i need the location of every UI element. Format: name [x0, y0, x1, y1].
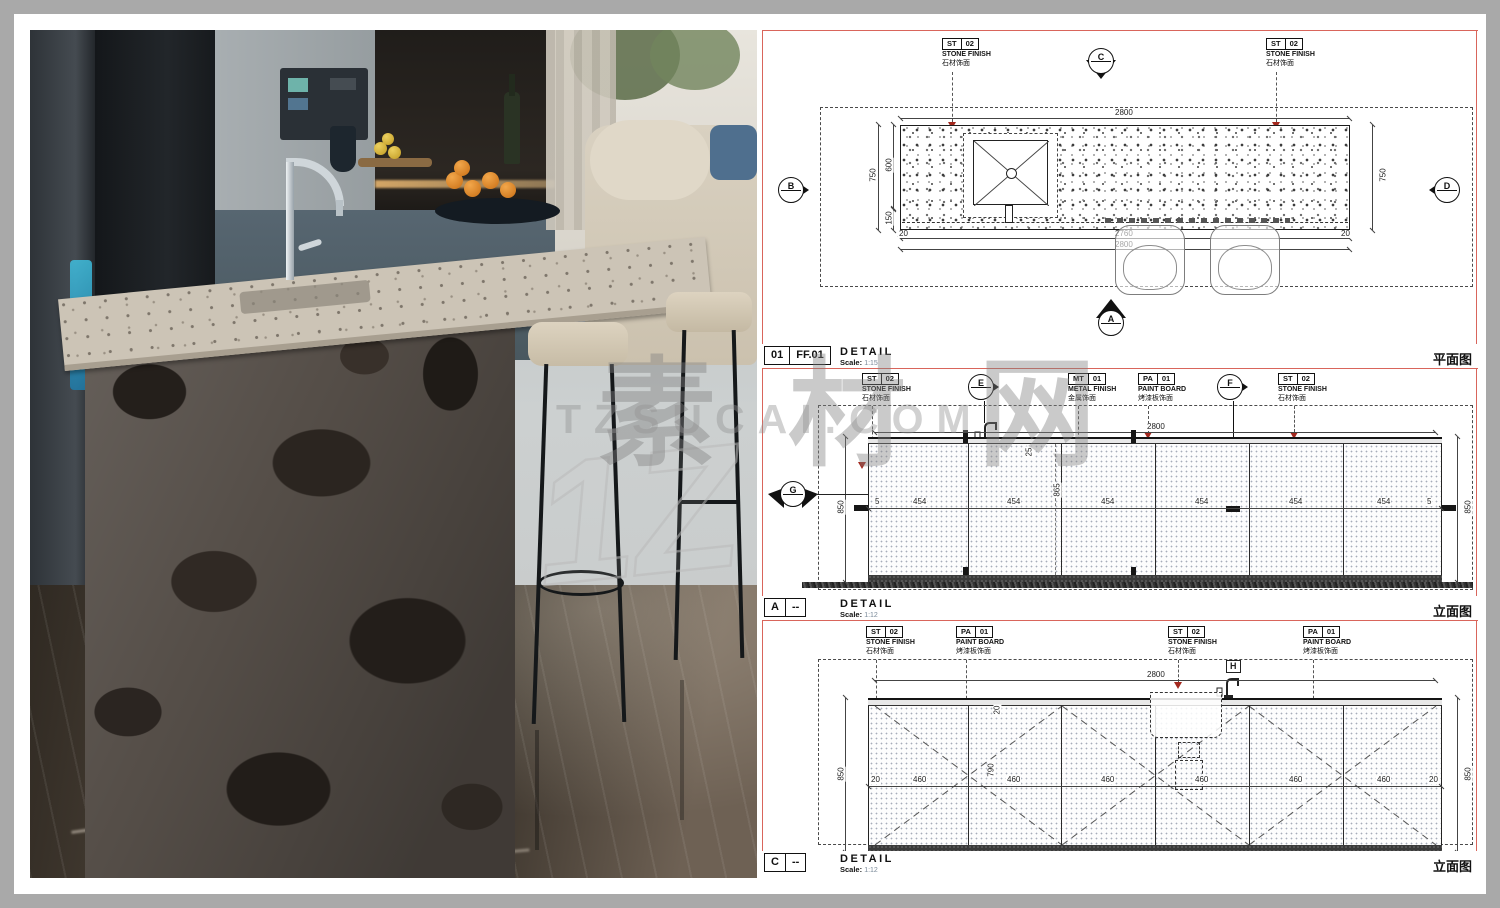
titlebar-plan: 01 FF.01 DETAIL Scale: 1:15 平面图 — [762, 344, 1478, 368]
hidden-drain — [1178, 742, 1200, 758]
view-type-label: 平面图 — [1433, 349, 1472, 368]
dim-label: 460 — [1100, 776, 1115, 784]
material-en: STONE FINISH — [942, 51, 1028, 59]
panel-divider — [1155, 444, 1156, 575]
design-board: ST02 STONE FINISH 石材饰面 ST02 STONE FINISH… — [0, 0, 1500, 908]
material-num: 02 — [1297, 374, 1314, 384]
dim-label: 5 — [874, 498, 880, 506]
photo-black-vase — [330, 126, 356, 172]
elevation-c-panel: ST02 STONE FINISH 石材饰面 PA01 PAINT BOARD … — [762, 620, 1478, 851]
photo-stool1-seat — [528, 322, 628, 366]
title-scale: Scale: 1:12 — [840, 865, 878, 874]
dim-label: 460 — [1194, 776, 1209, 784]
plan-view-panel: ST02 STONE FINISH 石材饰面 ST02 STONE FINISH… — [762, 30, 1478, 344]
material-cn: 石材饰面 — [866, 648, 952, 656]
plan-faucet-stub — [1005, 205, 1013, 223]
section-marker-g: G — [770, 480, 816, 508]
title-name: DETAIL — [840, 346, 894, 358]
photo-stool2-crossbar — [678, 500, 740, 504]
dim-line — [900, 118, 1350, 119]
panel-divider — [1061, 444, 1062, 575]
callout-stone-finish: ST02 STONE FINISH 石材饰面 — [866, 626, 952, 656]
title-number: 01 — [765, 347, 789, 364]
photo-orange-3 — [482, 172, 499, 189]
hidden-sink — [1150, 692, 1222, 738]
dim-line — [874, 680, 1436, 681]
dim-label: 460 — [912, 776, 927, 784]
dim-label: 454 — [1376, 498, 1391, 506]
material-code: ST — [943, 39, 961, 49]
dim-label: 850 — [838, 766, 846, 781]
panel-divider — [968, 444, 969, 575]
titlebar-elevation-c: C -- DETAIL Scale: 1:12 立面图 — [762, 851, 1478, 875]
stool-hatch-strip — [1105, 218, 1290, 223]
photo-orange-5 — [500, 182, 516, 198]
photo-sofa-cushion — [590, 120, 710, 200]
panel-divider — [1343, 706, 1344, 845]
material-code: ST — [1169, 627, 1187, 637]
callout-stone-finish: ST02 STONE FINISH 石材饰面 — [942, 38, 1028, 68]
cad-sheet: ST02 STONE FINISH 石材饰面 ST02 STONE FINISH… — [762, 30, 1478, 875]
dim-line — [1372, 125, 1373, 230]
dim-line — [1457, 437, 1458, 582]
dim-label: 850 — [1465, 766, 1473, 781]
marker-line — [816, 494, 868, 495]
callout-paint-board: PA01 PAINT BOARD 烤漆板饰面 — [1138, 373, 1224, 403]
plan-stool — [1210, 225, 1280, 295]
plan-stool — [1115, 225, 1185, 295]
dim-label: 460 — [1006, 776, 1021, 784]
title-name: DETAIL — [840, 853, 894, 865]
material-en: STONE FINISH — [1168, 639, 1254, 647]
counter-edge-band — [868, 437, 1442, 444]
dim-label: 750 — [870, 167, 878, 182]
material-en: PAINT BOARD — [1138, 386, 1224, 394]
title-code: FF.01 — [789, 347, 830, 364]
dim-line — [1457, 698, 1458, 852]
reference-photo-kitchen-island — [30, 30, 757, 878]
material-en: PAINT BOARD — [1303, 639, 1389, 647]
dim-label: 454 — [1288, 498, 1303, 506]
photo-orange-4 — [454, 160, 470, 176]
dim-label: 25 — [1025, 447, 1033, 458]
title-ref-box: A -- — [764, 598, 806, 617]
dim-label: 865 — [1054, 482, 1062, 497]
material-en: STONE FINISH — [866, 639, 952, 647]
title-ref-box: C -- — [764, 853, 806, 872]
photo-blue-pillow — [710, 125, 757, 180]
section-marker-c: C — [1078, 48, 1124, 76]
dim-label: 2800 — [1146, 671, 1166, 679]
dim-label: 20 — [1340, 230, 1351, 238]
material-cn: 石材饰面 — [1168, 648, 1254, 656]
material-num: 02 — [1187, 627, 1204, 637]
dim-label: 20 — [898, 230, 909, 238]
dim-label: 850 — [838, 499, 846, 514]
view-type-label: 立面图 — [1433, 856, 1472, 875]
material-num: 01 — [1088, 374, 1105, 384]
section-marker-e: E — [968, 373, 1014, 401]
photo-lemon-3 — [382, 133, 394, 145]
material-cn: 烤漆板饰面 — [1138, 395, 1224, 403]
section-marker-b: B — [778, 176, 824, 204]
photo-orange-2 — [464, 180, 481, 197]
material-cn: 烤漆板饰面 — [956, 648, 1042, 656]
photo-wood-tray — [358, 158, 432, 167]
dim-label: 454 — [912, 498, 927, 506]
dim-label: 454 — [1194, 498, 1209, 506]
dim-label: 790 — [988, 762, 996, 777]
material-cn: 石材饰面 — [942, 60, 1028, 68]
callout-stone-finish: ST02 STONE FINISH 石材饰面 — [1168, 626, 1254, 656]
material-code: PA — [1304, 627, 1322, 637]
dim-label: 850 — [1465, 499, 1473, 514]
plan-sink — [973, 140, 1048, 205]
photo-island-base — [85, 285, 515, 878]
callout-paint-board: PA01 PAINT BOARD 烤漆板饰面 — [956, 626, 1042, 656]
photo-bottle-neck — [509, 74, 515, 96]
callout-paint-board: PA01 PAINT BOARD 烤漆板饰面 — [1303, 626, 1389, 656]
dim-label: 454 — [1006, 498, 1021, 506]
material-cn: 石材饰面 — [1266, 60, 1352, 68]
photo-oven-knob — [330, 78, 356, 90]
dim-label: 5 — [1426, 498, 1432, 506]
material-num: 02 — [881, 374, 898, 384]
callout-stone-finish: ST02 STONE FINISH 石材饰面 — [862, 373, 948, 403]
material-en: STONE FINISH — [862, 386, 948, 394]
panel-divider — [1249, 444, 1250, 575]
title-code: -- — [785, 854, 805, 871]
titlebar-elevation-a: A -- DETAIL Scale: 1:12 立面图 — [762, 596, 1478, 620]
title-scale: Scale: 1:12 — [840, 610, 878, 619]
photo-bottle — [504, 92, 520, 164]
baseboard — [868, 575, 1442, 582]
handle-tab — [1131, 430, 1136, 443]
elevation-a-panel: ST02 STONE FINISH 石材饰面 E MT01 METAL FINI… — [762, 368, 1478, 596]
panel-divider — [1061, 706, 1062, 845]
photo-stool2-seat — [666, 292, 752, 332]
callout-stone-finish: ST02 STONE FINISH 石材饰面 — [1266, 38, 1352, 68]
title-name: DETAIL — [840, 598, 894, 610]
photo-stool-reflection2 — [680, 680, 684, 820]
dim-label: 2800 — [1146, 423, 1166, 431]
dim-label: 460 — [1288, 776, 1303, 784]
title-number: C — [765, 854, 785, 871]
dim-line — [874, 432, 1436, 433]
title-code: -- — [785, 599, 805, 616]
material-num: 02 — [1285, 39, 1302, 49]
dim-label: 20 — [993, 705, 1001, 716]
section-marker-a: A — [1088, 298, 1134, 326]
dim-line — [878, 125, 879, 230]
front-handle — [1226, 506, 1240, 512]
material-num: 01 — [1322, 627, 1339, 637]
material-num: 02 — [885, 627, 902, 637]
dim-label: 20 — [870, 776, 881, 784]
dim-label: 150 — [886, 210, 894, 225]
dim-line — [868, 786, 1442, 787]
title-ref-box: 01 FF.01 — [764, 346, 831, 365]
dim-label: 750 — [1380, 167, 1388, 182]
material-code: ST — [863, 374, 881, 384]
photo-oven-display2 — [288, 98, 308, 110]
material-code: PA — [1139, 374, 1157, 384]
material-code: ST — [867, 627, 885, 637]
photo-faucet-stem — [286, 162, 294, 280]
material-num: 02 — [961, 39, 978, 49]
photo-faucet-tip — [336, 200, 343, 216]
callout-stone-finish: ST02 STONE FINISH 石材饰面 — [1278, 373, 1364, 403]
material-cn: 烤漆板饰面 — [1303, 648, 1389, 656]
floor-strip — [802, 582, 1473, 588]
photo-stool-reflection — [535, 730, 539, 850]
panel-divider — [1343, 444, 1344, 575]
photo-lemon-2 — [388, 146, 401, 159]
material-cn: 石材饰面 — [1278, 395, 1364, 403]
material-en: PAINT BOARD — [956, 639, 1042, 647]
material-code: MT — [1069, 374, 1088, 384]
panel-divider — [1249, 706, 1250, 845]
dim-line — [868, 508, 1442, 509]
photo-dark-tray — [435, 198, 560, 224]
title-number: A — [765, 599, 785, 616]
material-cn: 石材饰面 — [862, 395, 948, 403]
dim-label: 2800 — [1114, 109, 1134, 117]
panel-divider — [968, 706, 969, 845]
view-type-label: 立面图 — [1433, 601, 1472, 620]
dim-label: 600 — [886, 157, 894, 172]
material-en: STONE FINISH — [1278, 386, 1364, 394]
photo-stool1-footring — [538, 570, 624, 596]
dim-label: 460 — [1376, 776, 1391, 784]
photo-oven-display — [288, 78, 308, 92]
material-num: 01 — [975, 627, 992, 637]
centerline — [1055, 444, 1056, 575]
section-marker-f: F — [1217, 373, 1263, 401]
handle-tab — [963, 430, 968, 443]
material-en: STONE FINISH — [1266, 51, 1352, 59]
dim-label: 20 — [1428, 776, 1439, 784]
material-code: ST — [1279, 374, 1297, 384]
title-scale: Scale: 1:15 — [840, 358, 878, 367]
dim-label: 454 — [1100, 498, 1115, 506]
sink-drain — [1006, 168, 1017, 179]
material-num: 01 — [1157, 374, 1174, 384]
material-code: ST — [1267, 39, 1285, 49]
material-code: PA — [957, 627, 975, 637]
